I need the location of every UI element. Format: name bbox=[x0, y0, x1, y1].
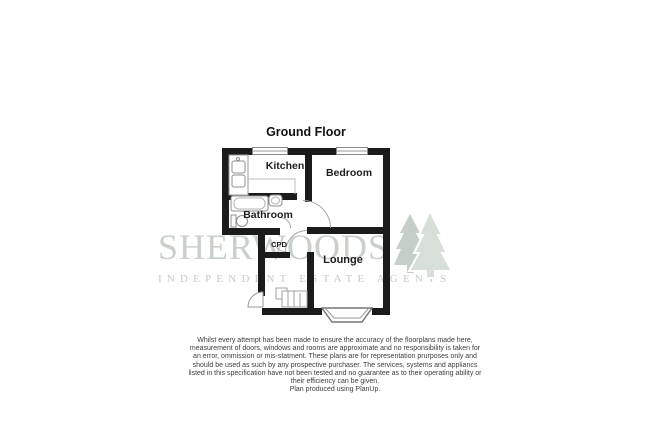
wall-kitchen-bathroom bbox=[222, 193, 297, 200]
entrance-steps bbox=[276, 288, 307, 307]
bay-window bbox=[322, 308, 372, 322]
wall-bedroom-lounge bbox=[307, 227, 390, 234]
bedroom-window bbox=[336, 147, 368, 155]
room-label-bathroom: Bathroom bbox=[238, 209, 298, 221]
disclaimer-line: should be used as such by any prospectiv… bbox=[125, 362, 545, 370]
page-title: Ground Floor bbox=[222, 125, 390, 139]
wall-bottom-left bbox=[262, 308, 322, 315]
disclaimer: Whilst every attempt has been made to en… bbox=[125, 337, 545, 394]
room-label-lounge: Lounge bbox=[313, 254, 373, 266]
room-label-cpd: CPD bbox=[264, 240, 294, 249]
bedroom-door-arc bbox=[303, 200, 331, 228]
wall-left bbox=[222, 148, 229, 235]
disclaimer-line: Plan produced using PlanUp. bbox=[125, 386, 545, 394]
disclaimer-line: their efficiency can be given. bbox=[125, 378, 545, 386]
wall-kitchen-bedroom bbox=[305, 148, 312, 202]
wall-bottom-right bbox=[372, 308, 390, 315]
disclaimer-line: measurement of doors, windows and rooms … bbox=[125, 345, 545, 353]
disclaimer-line: an error, ommission or mis-statment. The… bbox=[125, 353, 545, 361]
floorplan-page: SHERWOODS INDEPENDENT ESTATE AGENTS Grou… bbox=[0, 0, 670, 432]
disclaimer-line: listed in this specification have not be… bbox=[125, 370, 545, 378]
kitchen-sink bbox=[232, 158, 245, 188]
wall-cpd-bottom bbox=[258, 252, 290, 258]
kitchen-window bbox=[252, 147, 288, 155]
room-label-kitchen: Kitchen bbox=[255, 160, 315, 172]
disclaimer-line: Whilst every attempt has been made to en… bbox=[125, 337, 545, 345]
wall-bathroom-bottom bbox=[222, 228, 280, 235]
room-label-bedroom: Bedroom bbox=[319, 167, 379, 179]
pine-trees-icon bbox=[394, 211, 454, 279]
